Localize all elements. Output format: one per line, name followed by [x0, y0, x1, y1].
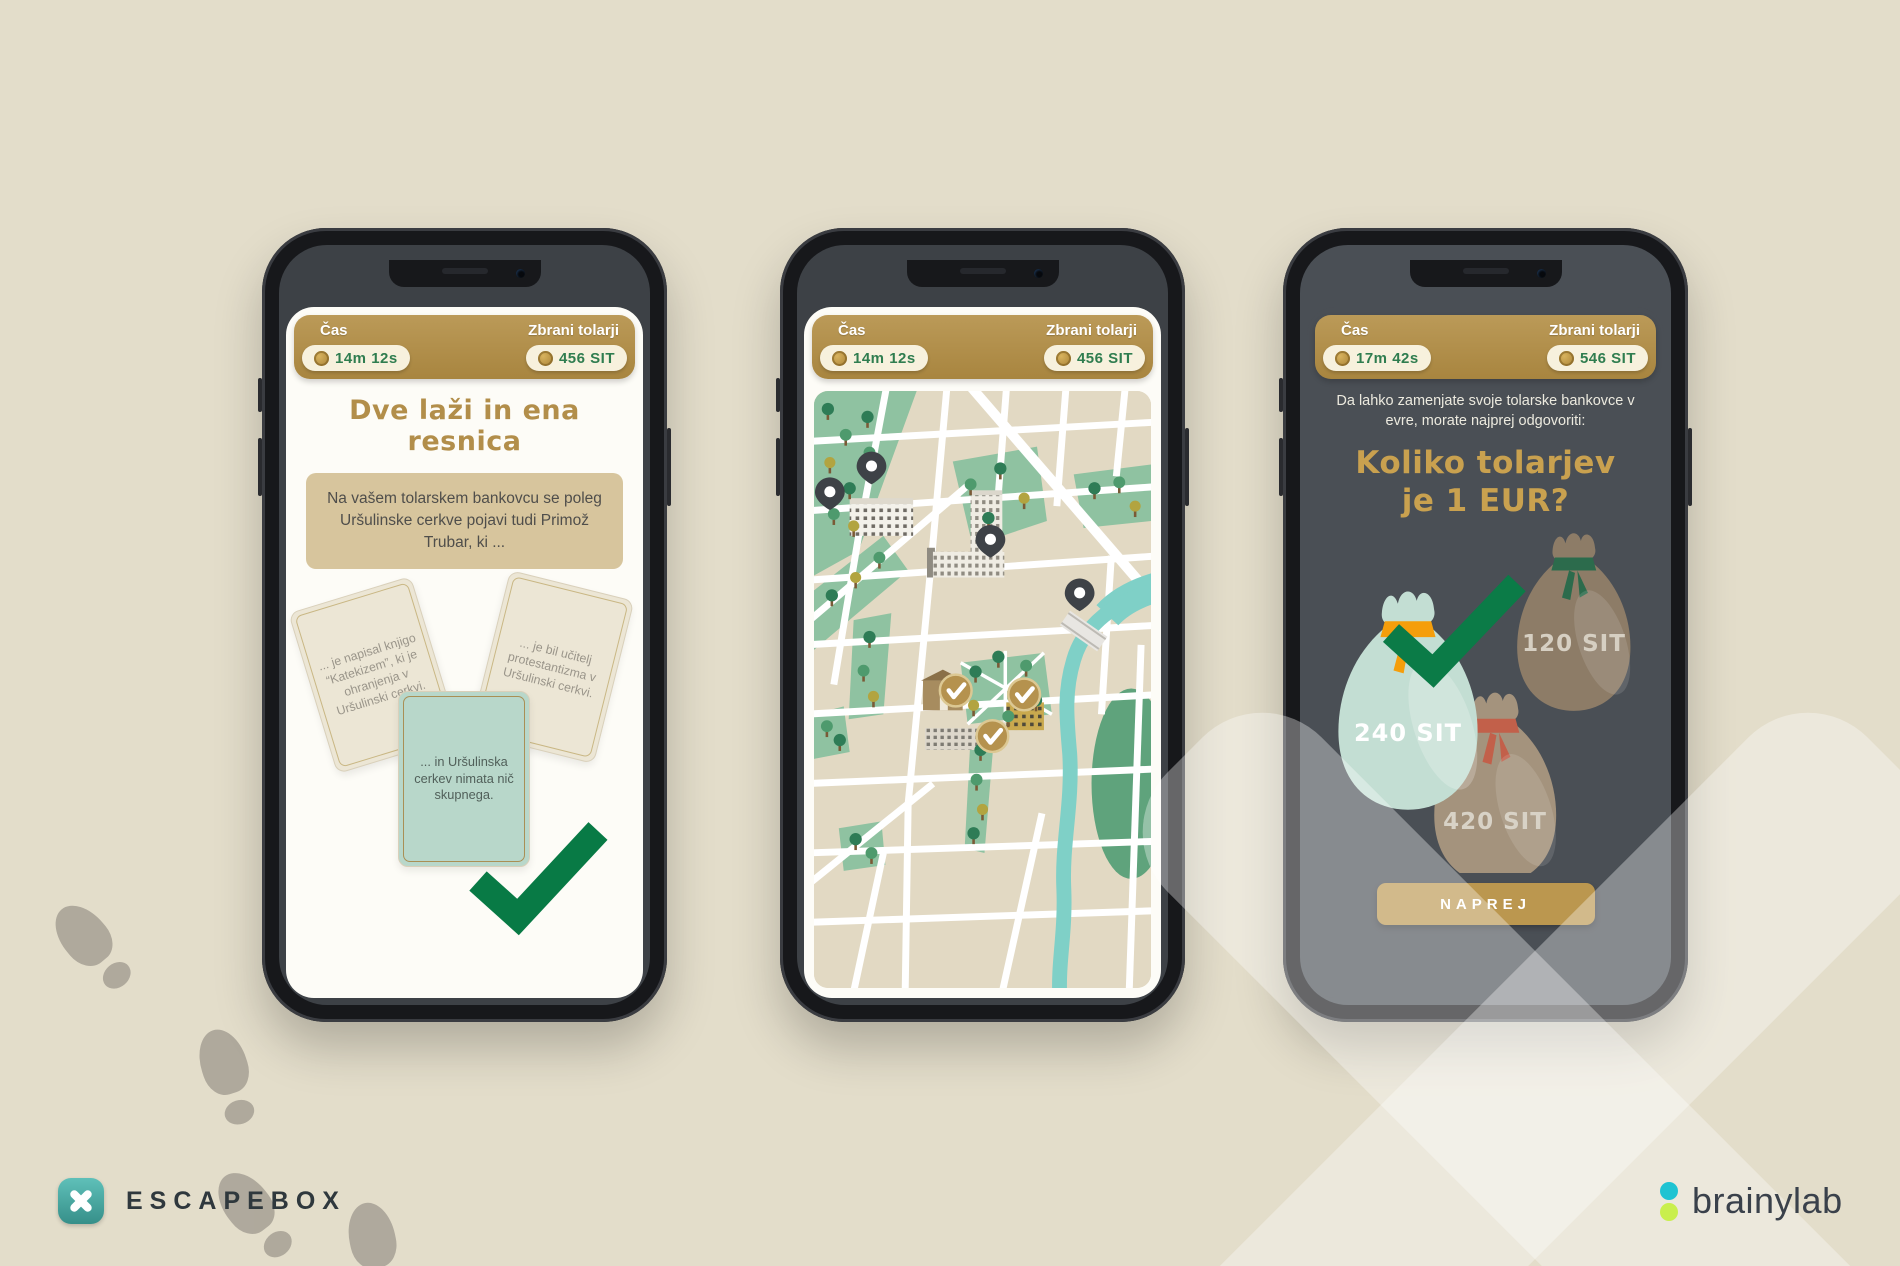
phone-map: Čas Zbrani tolarji 14m 12s 456 SIT	[780, 228, 1185, 1022]
coin-icon	[832, 351, 847, 366]
power-button	[1185, 428, 1189, 506]
green-check-icon	[1379, 571, 1529, 691]
coins-label: Zbrani tolarji	[528, 322, 619, 339]
time-label: Čas	[838, 322, 866, 339]
status-header: Čas Zbrani tolarji 14m 12s 456 SIT	[294, 315, 635, 379]
city-map[interactable]	[814, 391, 1151, 988]
question-app: Čas Zbrani tolarji 17m 42s 546 SIT Da la…	[1307, 307, 1664, 998]
x-icon	[58, 1178, 104, 1224]
escapebox-logo: ESCAPEBOX	[58, 1178, 346, 1224]
phone-screen: Čas Zbrani tolarji 17m 42s 546 SIT Da la…	[1300, 245, 1671, 1005]
volume-up-button	[258, 438, 262, 496]
gold-check-icon[interactable]	[977, 720, 1009, 752]
coins-value: 456 SIT	[1077, 350, 1133, 367]
mute-switch	[258, 378, 262, 412]
timer-pill: 14m 12s	[302, 345, 410, 371]
question-prompt: Na vašem tolarskem bankovcu se poleg Urš…	[306, 473, 623, 569]
coins-value: 456 SIT	[559, 350, 615, 367]
footprint-icon	[342, 1198, 407, 1266]
time-label: Čas	[320, 322, 348, 339]
coins-value: 546 SIT	[1580, 350, 1636, 367]
coins-label: Zbrani tolarji	[1549, 322, 1640, 339]
next-button[interactable]: NAPREJ	[1377, 883, 1595, 925]
status-header: Čas Zbrani tolarji 17m 42s 546 SIT	[1315, 315, 1656, 379]
brainylab-wordmark: brainylab	[1692, 1180, 1843, 1222]
mute-switch	[1279, 378, 1283, 412]
power-button	[1688, 428, 1692, 506]
gold-check-icon[interactable]	[940, 675, 972, 707]
answer-bags: 240 SIT 120 SIT 420 SIT	[1307, 523, 1664, 873]
phone-question: Čas Zbrani tolarji 17m 42s 546 SIT Da la…	[1283, 228, 1688, 1022]
intro-text: Da lahko zamenjate svoje tolarske bankov…	[1323, 391, 1648, 432]
time-label: Čas	[1341, 322, 1369, 339]
status-header: Čas Zbrani tolarji 14m 12s 456 SIT	[812, 315, 1153, 379]
coins-label: Zbrani tolarji	[1046, 322, 1137, 339]
coins-pill: 456 SIT	[1044, 345, 1145, 371]
time-value: 14m 12s	[335, 350, 398, 367]
map-app: Čas Zbrani tolarji 14m 12s 456 SIT	[804, 307, 1161, 998]
timer-pill: 14m 12s	[820, 345, 928, 371]
coins-pill: 546 SIT	[1547, 345, 1648, 371]
timer-pill: 17m 42s	[1323, 345, 1431, 371]
gold-check-icon[interactable]	[1008, 679, 1040, 711]
answer-card-text: ... in Uršulinska cerkev nimata nič skup…	[409, 754, 519, 805]
question-title: Koliko tolarjev je 1 EUR?	[1336, 444, 1636, 522]
volume-up-button	[1279, 438, 1283, 496]
coin-icon	[1335, 351, 1350, 366]
time-value: 14m 12s	[853, 350, 916, 367]
phone-quiz: Čas Zbrani tolarji 14m 12s 456 SIT Dve l…	[262, 228, 667, 1022]
escapebox-wordmark: ESCAPEBOX	[126, 1187, 346, 1216]
brainylab-logo: brainylab	[1660, 1180, 1843, 1222]
phone-screen: Čas Zbrani tolarji 14m 12s 456 SIT Dve l…	[279, 245, 650, 1005]
footprint-icon	[44, 895, 142, 1000]
coins-pill: 456 SIT	[526, 345, 627, 371]
brainylab-dots-icon	[1660, 1182, 1678, 1221]
green-check-icon	[468, 821, 608, 937]
power-button	[667, 428, 671, 506]
poster-canvas: Čas Zbrani tolarji 14m 12s 456 SIT Dve l…	[0, 0, 1900, 1266]
phone-screen: Čas Zbrani tolarji 14m 12s 456 SIT	[797, 245, 1168, 1005]
answer-bag-120[interactable]	[1517, 533, 1641, 711]
coin-icon	[538, 351, 553, 366]
coin-icon	[1056, 351, 1071, 366]
coin-icon	[1559, 351, 1574, 366]
bag-value: 240 SIT	[1337, 719, 1479, 747]
coin-icon	[314, 351, 329, 366]
page-title: Dve laži in ena resnica	[294, 395, 635, 457]
footprint-icon	[191, 1023, 265, 1130]
bag-value: 420 SIT	[1425, 809, 1565, 835]
volume-up-button	[776, 438, 780, 496]
time-value: 17m 42s	[1356, 350, 1419, 367]
mute-switch	[776, 378, 780, 412]
answer-cards: ... je napisal knjigo “Katekizem”, ki je…	[286, 573, 643, 913]
quiz-app: Čas Zbrani tolarji 14m 12s 456 SIT Dve l…	[286, 307, 643, 998]
